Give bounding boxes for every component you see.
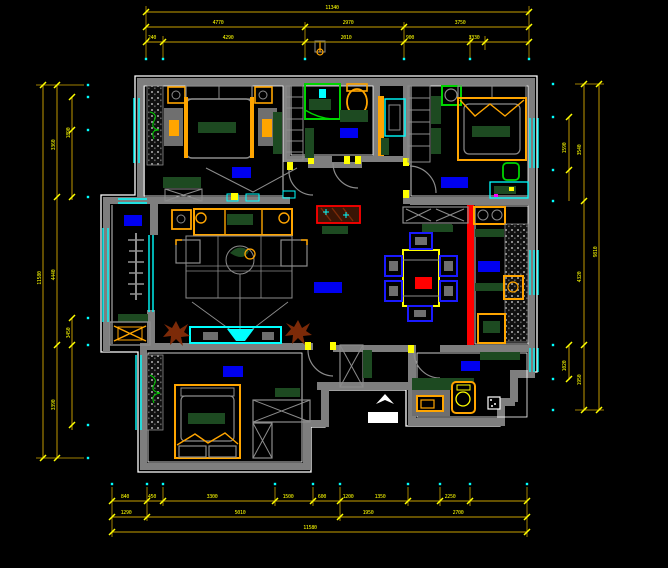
svg-text:3450: 3450 (66, 327, 72, 338)
svg-text:1890: 1890 (66, 127, 72, 138)
feature-wall-red (467, 205, 474, 345)
svg-text:3540: 3540 (577, 144, 583, 155)
svg-text:1200: 1200 (343, 494, 354, 500)
svg-text:4440: 4440 (51, 269, 57, 280)
svg-text:1950: 1950 (577, 374, 583, 385)
svg-text:2010: 2010 (341, 35, 352, 41)
svg-text:11580: 11580 (37, 271, 43, 285)
svg-text:2700: 2700 (453, 510, 464, 516)
svg-text:2970: 2970 (343, 20, 354, 26)
svg-text:600: 600 (318, 494, 326, 500)
cad-viewport: 1134047702970375024042902010900333011580… (0, 0, 668, 568)
svg-text:1350: 1350 (375, 494, 386, 500)
svg-text:3390: 3390 (51, 399, 57, 410)
svg-text:900: 900 (406, 35, 414, 41)
svg-text:4770: 4770 (213, 20, 224, 26)
svg-text:2250: 2250 (445, 494, 456, 500)
svg-text:3750: 3750 (455, 20, 466, 26)
svg-text:3360: 3360 (51, 139, 57, 150)
floor-plan-canvas: 1134047702970375024042902010900333011580… (0, 0, 668, 568)
svg-text:9810: 9810 (593, 246, 599, 257)
svg-text:1290: 1290 (121, 510, 132, 516)
svg-text:1590: 1590 (562, 142, 568, 153)
svg-text:11340: 11340 (325, 5, 339, 11)
svg-text:3300: 3300 (207, 494, 218, 500)
svg-text:4290: 4290 (223, 35, 234, 41)
svg-text:5010: 5010 (235, 510, 246, 516)
svg-text:1020: 1020 (562, 360, 568, 371)
svg-text:1950: 1950 (363, 510, 374, 516)
svg-text:4320: 4320 (577, 271, 583, 282)
svg-text:1500: 1500 (283, 494, 294, 500)
svg-text:11580: 11580 (303, 525, 317, 531)
svg-text:450: 450 (148, 494, 156, 500)
svg-text:3330: 3330 (469, 35, 480, 41)
svg-text:840: 840 (121, 494, 129, 500)
svg-text:240: 240 (148, 35, 156, 41)
